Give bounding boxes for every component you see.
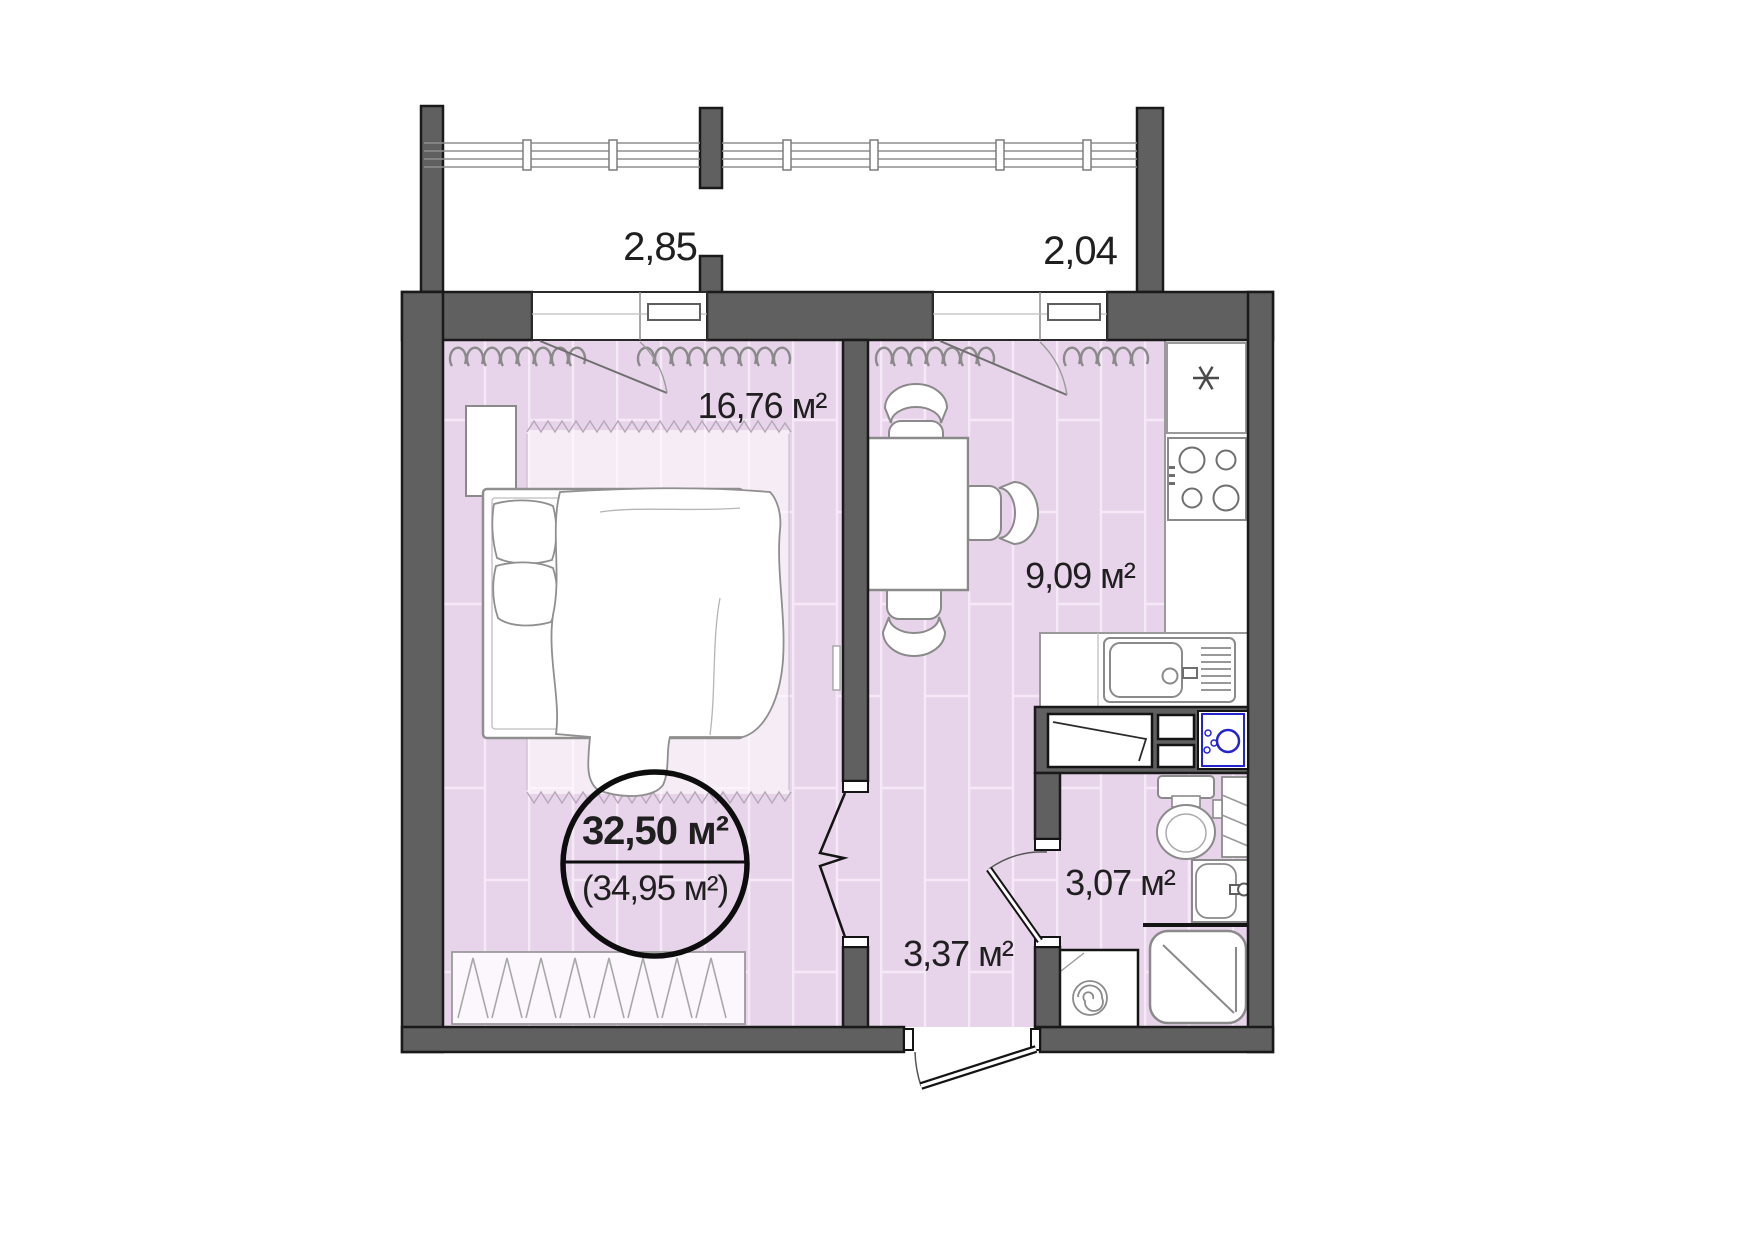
glazing-mullion — [1083, 140, 1091, 170]
wall-inserts — [1048, 711, 1248, 769]
stove — [1168, 438, 1246, 520]
bedroom-area-label: 16,76 м² — [698, 385, 828, 426]
wall-left — [402, 292, 443, 1052]
wall-bottom-left — [402, 1027, 904, 1052]
mirror — [833, 646, 840, 690]
kitchen-area-label: 9,09 м² — [1025, 555, 1136, 596]
wall-balcony-divider-top — [700, 108, 722, 188]
glazing-mullion — [609, 140, 617, 170]
faucet-icon — [1183, 668, 1197, 678]
glazing-mullion — [996, 140, 1004, 170]
dish-drainer-icon — [1201, 648, 1231, 690]
bathroom-door-gap-floor — [1035, 850, 1060, 937]
wall-window-center — [707, 292, 933, 340]
window-sill — [1048, 304, 1100, 320]
shower-icon — [1150, 931, 1246, 1023]
window-sill — [648, 304, 700, 320]
hallway-area-label: 3,37 м² — [903, 933, 1014, 974]
glazing-mullion — [523, 140, 531, 170]
balcony-dim-right: 2,04 — [1043, 229, 1118, 273]
door-jamb — [843, 937, 868, 947]
vent-duct-icon — [1048, 714, 1152, 767]
total-area-with-balcony: (34,95 м²) — [582, 869, 728, 908]
nightstand — [466, 406, 516, 496]
wall-balcony-left — [421, 106, 443, 292]
door-jamb — [904, 1029, 913, 1050]
toilet-icon — [1157, 776, 1215, 859]
wall-bottom-right — [1040, 1027, 1273, 1052]
floor-plan: 2,85 2,04 16,76 м² 9,09 м² 3,37 м² 3,07 … — [0, 0, 1754, 1241]
pillow — [493, 562, 557, 625]
bathroom-area-label: 3,07 м² — [1065, 862, 1176, 903]
wall-bedroom-divider — [843, 340, 868, 781]
chair — [959, 482, 1038, 544]
wall-bathroom-left-upper — [1035, 773, 1060, 839]
glazing-mullion — [783, 140, 791, 170]
wash-basin-icon — [1192, 860, 1250, 922]
door-jamb — [1035, 839, 1060, 850]
wall-bathroom-left-lower — [1035, 947, 1060, 1027]
wall-balcony-right — [1137, 108, 1163, 292]
bedroom-door-gap-floor — [843, 792, 868, 940]
boiler-icon — [1198, 711, 1248, 769]
door-swing-arc — [915, 1052, 921, 1086]
wardrobe — [452, 952, 745, 1024]
wall-bedroom-divider-lower — [843, 947, 868, 1027]
dining-table — [868, 438, 968, 590]
washing-machine — [1056, 950, 1138, 1027]
balcony-dim-left: 2,85 — [623, 225, 697, 269]
storage-niche — [1158, 745, 1194, 767]
glazing-mullion — [870, 140, 878, 170]
storage-niche — [1158, 715, 1194, 739]
kitchen-sink-counter — [1040, 633, 1248, 707]
stove-knobs — [1169, 466, 1175, 485]
door-jamb — [843, 781, 868, 792]
wall-right — [1248, 292, 1273, 1052]
total-area-main: 32,50 м² — [582, 809, 729, 853]
fridge — [1167, 343, 1246, 433]
balcony-glazing — [424, 140, 1137, 170]
entrance-door — [915, 1049, 1036, 1086]
pillow — [492, 500, 556, 563]
wall-balcony-divider-stub — [700, 256, 722, 294]
hallway-floor — [868, 707, 1035, 1027]
